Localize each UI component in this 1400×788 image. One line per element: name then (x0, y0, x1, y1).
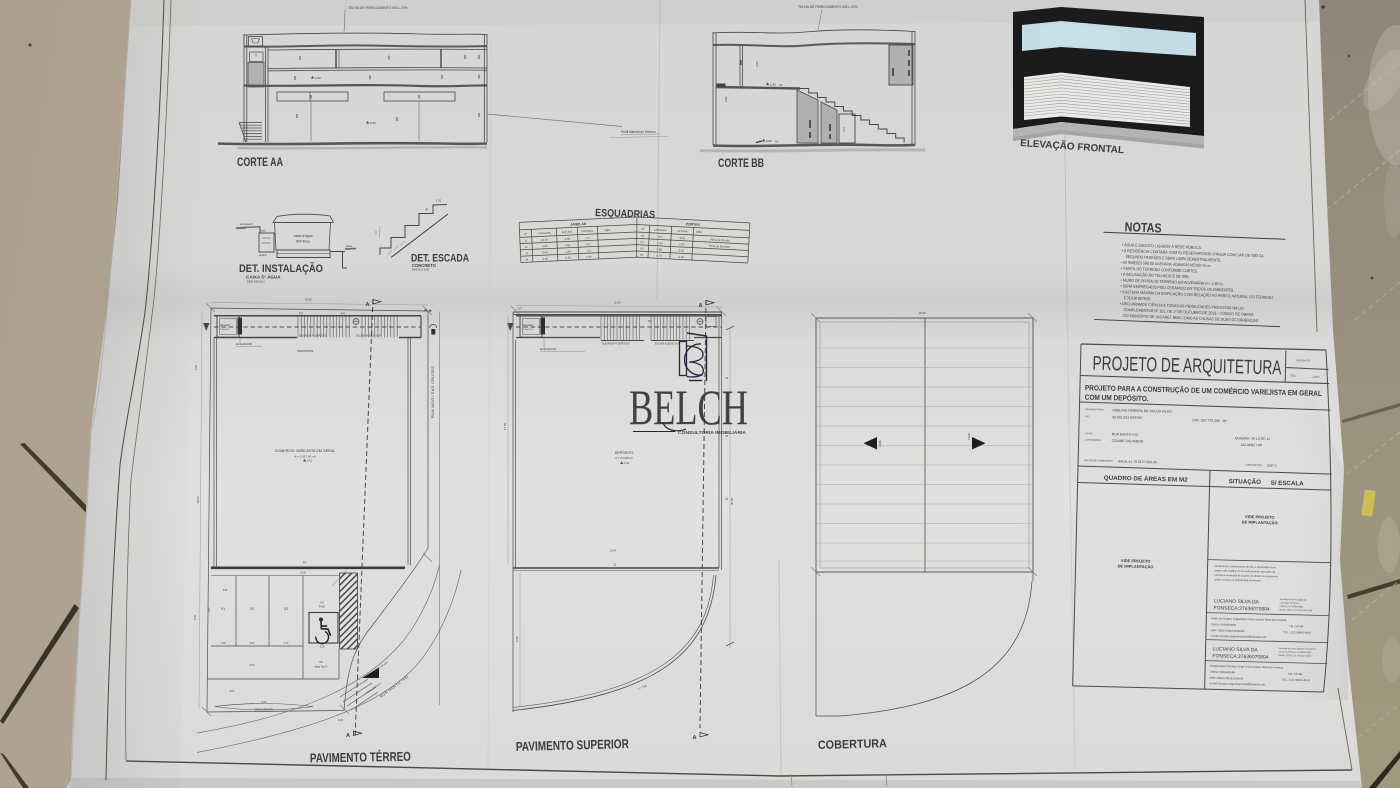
svg-text:1.40x1.10: 1.40x1.10 (220, 329, 230, 331)
svg-text:P3: P3 (299, 312, 303, 316)
svg-text:PROJETO DE ARQUITETURA: PROJETO DE ARQUITETURA (1092, 353, 1282, 380)
svg-text:A: A (366, 302, 370, 308)
svg-text:COBERTURA: COBERTURA (818, 736, 888, 752)
svg-text:38.05: 38.05 (730, 498, 734, 505)
svg-text:Elevador: Elevador (523, 323, 533, 327)
svg-text:ART: 28027230231936024: ART: 28027230231936024 (1210, 676, 1244, 681)
svg-text:CPF: 307.770.298 - 98: CPF: 307.770.298 - 98 (1192, 418, 1227, 423)
svg-text:P2: P2 (648, 319, 652, 323)
svg-text:A = 472,85 m²: A = 472,85 m² (615, 456, 633, 460)
svg-text:3.30: 3.30 (624, 461, 630, 465)
svg-text:38.00: 38.00 (196, 496, 200, 503)
svg-text:A = 1.017,40 m²: A = 1.017,40 m² (294, 455, 315, 459)
svg-text:CIDADE SALVADOR: CIDADE SALVADOR (1112, 439, 1144, 444)
svg-text:Perfil Natural do Terreno: Perfil Natural do Terreno (621, 130, 656, 134)
svg-text:ELEVADOR: ELEVADOR (540, 347, 557, 351)
svg-text:S/ ESCALA: S/ ESCALA (1271, 480, 1305, 488)
svg-text:2.10: 2.10 (679, 248, 685, 252)
svg-text:Elevador: Elevador (220, 323, 230, 327)
svg-text:LOCAL:: LOCAL: (1085, 432, 1094, 435)
svg-text:RUA MOGI DAS CRUZES: RUA MOGI DAS CRUZES (431, 366, 435, 418)
svg-text:P4: P4 (341, 312, 345, 316)
svg-text:ESCADA ACESSO SUP.: ESCADA ACESSO SUP. (655, 343, 680, 346)
svg-text:0.70: 0.70 (656, 254, 662, 258)
svg-text:3.00: 3.00 (679, 236, 685, 240)
svg-text:V3: V3 (284, 607, 288, 611)
svg-text:J1: J1 (613, 563, 617, 567)
svg-text:ALTURA: ALTURA (677, 229, 688, 234)
svg-text:5.90: 5.90 (515, 636, 519, 642)
svg-text:0.15: 0.15 (307, 459, 313, 463)
svg-text:A: A (693, 735, 697, 741)
svg-text:ESQUADRIAS: ESQUADRIAS (595, 207, 655, 221)
svg-text:0.60: 0.60 (565, 243, 571, 247)
svg-text:1.40x1.10: 1.40x1.10 (523, 329, 533, 331)
svg-text:P1: P1 (303, 561, 307, 565)
svg-text:A: A (699, 303, 703, 309)
svg-text:OBS.: OBS. (604, 228, 611, 232)
svg-text:5.50: 5.50 (194, 364, 198, 370)
svg-text:saída: saída (346, 245, 353, 248)
svg-text:DE IMPLANTAÇÃO: DE IMPLANTAÇÃO (1118, 563, 1154, 569)
svg-text:1.20: 1.20 (565, 249, 571, 253)
svg-text:PEITORIL: PEITORIL (581, 229, 594, 234)
svg-text:TEL.: (12) 98841-4993: TEL.: (12) 98841-4993 (1282, 678, 1311, 683)
svg-text:5.00: 5.00 (262, 701, 267, 704)
svg-text:A: A (346, 733, 350, 739)
svg-text:2.30: 2.30 (250, 643, 255, 645)
svg-text:LARGURA: LARGURA (537, 231, 550, 236)
svg-text:0.80: 0.80 (657, 247, 663, 251)
svg-text:DE IMPLANTAÇÃO: DE IMPLANTAÇÃO (1242, 519, 1278, 525)
svg-text:TRANSPORTE: TRANSPORTE (297, 350, 314, 353)
svg-text:2.80: 2.80 (770, 83, 776, 87)
svg-text:boia: boia (261, 230, 266, 233)
svg-text:PORTAS: PORTAS (686, 222, 701, 227)
svg-text:2.80: 2.80 (755, 61, 759, 67)
svg-text:CREA: 5069490984: CREA: 5069490984 (1211, 622, 1236, 627)
svg-text:CREA: 5069490984: CREA: 5069490984 (1210, 670, 1235, 675)
svg-text:i=20%: i=20% (879, 439, 882, 447)
svg-text:2.6: 2.6 (586, 242, 590, 246)
svg-text:1.00: 1.00 (543, 257, 549, 261)
svg-text:2.80: 2.80 (724, 96, 728, 102)
svg-text:registro: registro (259, 254, 268, 257)
svg-text:5.00: 5.00 (542, 250, 548, 254)
svg-text:Nº: Nº (641, 227, 644, 231)
svg-text:RG:: RG: (1085, 415, 1090, 418)
svg-text:entrada AC: entrada AC (240, 222, 253, 226)
svg-text:ELEVADOR: ELEVADOR (236, 342, 253, 346)
svg-text:1/100: 1/100 (1312, 375, 1320, 379)
svg-text:Vaga Tipo A: Vaga Tipo A (315, 666, 328, 669)
svg-text:CORTE AA: CORTE AA (237, 157, 283, 169)
svg-text:2.00: 2.00 (565, 237, 571, 241)
svg-text:13.40: 13.40 (541, 238, 548, 242)
svg-text:12.5: 12.5 (657, 235, 663, 239)
svg-text:TEL.: (12) 98841-4993: TEL.: (12) 98841-4993 (1283, 630, 1312, 635)
svg-text:ART: 28027230231936024: ART: 28027230231936024 (1211, 628, 1245, 633)
svg-text:V2: V2 (250, 607, 254, 611)
svg-text:ALTURA: ALTURA (562, 230, 573, 234)
svg-text:LOTEAMENTO:: LOTEAMENTO: (1085, 439, 1102, 442)
svg-text:OBS.: OBS. (696, 230, 703, 234)
svg-text:Nº: Nº (524, 232, 527, 236)
svg-text:V1: V1 (221, 607, 225, 611)
svg-text:8.00: 8.00 (193, 614, 197, 620)
svg-text:V5: V5 (319, 660, 323, 664)
svg-text:1.20: 1.20 (436, 199, 442, 203)
svg-text:FOLHA 2/2: FOLHA 2/2 (1297, 358, 1311, 362)
svg-text:1.5: 1.5 (586, 236, 590, 240)
svg-text:5.00: 5.00 (250, 665, 255, 667)
svg-text:NV: NV (779, 83, 783, 87)
svg-text:4.80: 4.80 (223, 590, 228, 592)
svg-text:LUCIANO SILVA DA: LUCIANO SILVA DA (1213, 646, 1259, 653)
svg-text:2.10: 2.10 (842, 126, 846, 132)
svg-text:15.00: 15.00 (919, 311, 926, 315)
svg-text:13.40: 13.40 (610, 550, 617, 553)
svg-text:BELCH: BELCH (629, 379, 748, 435)
svg-text:ELEVADOR P/ DEPÓSITO: ELEVADOR P/ DEPÓSITO (602, 343, 630, 346)
svg-text:12.50: 12.50 (300, 572, 307, 575)
svg-text:2.10: 2.10 (678, 255, 684, 259)
svg-text:caixa d'água: caixa d'água (294, 234, 313, 238)
svg-text:FONSECA:37636070804: FONSECA:37636070804 (1280, 605, 1304, 609)
svg-text:2.80: 2.80 (315, 76, 321, 80)
svg-text:1.20: 1.20 (657, 241, 663, 245)
svg-text:CONSULTORIA IMOBILIÁRIA: CONSULTORIA IMOBILIÁRIA (678, 429, 747, 436)
svg-text:COM UM DEPÓSITO.: COM UM DEPÓSITO. (1085, 393, 1149, 404)
svg-text:17.45: 17.45 (503, 423, 507, 430)
svg-text:ESCADA ACESSO SUP.: ESCADA ACESSO SUP. (356, 334, 381, 337)
svg-text:ESC.: ESC. (1290, 374, 1297, 378)
svg-text:2.30: 2.30 (221, 643, 226, 645)
svg-text:500 litros: 500 litros (296, 240, 310, 244)
svg-text:0.00: 0.00 (766, 139, 772, 143)
svg-text:PROPRIETÁRIO:: PROPRIETÁRIO: (1085, 408, 1104, 411)
svg-text:56.031.822 ESP/SP: 56.031.822 ESP/SP (1112, 415, 1143, 420)
svg-text:I.M.: 56748: I.M.: 56748 (1289, 624, 1304, 628)
svg-text:COMERCIO VAREJISTA EM GERAL: COMERCIO VAREJISTA EM GERAL (275, 449, 336, 453)
svg-text:CORTE BB: CORTE BB (718, 158, 764, 170)
svg-text:DEPÓSITO: DEPÓSITO (615, 450, 634, 455)
svg-text:15.00: 15.00 (305, 298, 312, 302)
svg-text:ESCALA 1/50: ESCALA 1/50 (412, 268, 430, 272)
svg-text:LUCIANO SILVA DA: LUCIANO SILVA DA (1214, 598, 1260, 605)
svg-text:1.90: 1.90 (586, 255, 592, 259)
svg-text:5.00: 5.00 (542, 244, 548, 248)
svg-text:0.00: 0.00 (370, 121, 376, 125)
svg-text:P.N.E: P.N.E (319, 606, 325, 609)
svg-text:J3: J3 (725, 497, 728, 501)
svg-text:NV: NV (775, 140, 779, 144)
svg-text:1.5: 1.5 (586, 248, 590, 252)
svg-text:0.50: 0.50 (566, 256, 572, 260)
svg-text:LUCIANO SILVA DA: LUCIANO SILVA DA (1280, 601, 1299, 604)
svg-text:JANELAS: JANELAS (570, 222, 587, 227)
svg-text:2.00: 2.00 (679, 242, 685, 246)
svg-text:4.80: 4.80 (209, 607, 211, 612)
svg-text:V4: V4 (320, 601, 324, 605)
svg-text:LARGURA: LARGURA (654, 228, 667, 233)
svg-text:8.00: 8.00 (230, 691, 235, 693)
svg-text:DET. INSTALAÇÃO: DET. INSTALAÇÃO (239, 262, 323, 275)
svg-text:RUA SANTO IVO: RUA SANTO IVO (1112, 432, 1139, 437)
svg-text:2.30: 2.30 (320, 647, 325, 649)
svg-text:TELHA DE FIBROCIMENTO INCL 20%: TELHA DE FIBROCIMENTO INCL 20% (348, 6, 408, 10)
svg-text:ZONEAMENTO:: ZONEAMENTO: (1245, 464, 1263, 467)
svg-text:Guia rebaixada: Guia rebaixada (255, 707, 273, 711)
svg-text:15.00: 15.00 (614, 301, 621, 305)
svg-text:JACAREÍ / SP: JACAREÍ / SP (1241, 443, 1263, 448)
svg-text:8.00: 8.00 (338, 718, 344, 722)
svg-text:TELHA DE FIBROCIMENTO INCL 20%: TELHA DE FIBROCIMENTO INCL 20% (798, 5, 858, 9)
svg-text:ELEVADOR P/ DEPÓSITO: ELEVADOR P/ DEPÓSITO (299, 334, 327, 337)
svg-text:SITUAÇÃO: SITUAÇÃO (1229, 478, 1262, 486)
svg-text:1.57: 1.57 (517, 308, 522, 311)
svg-text:i=20%: i=20% (968, 432, 971, 440)
svg-text:I.M.: 56748: I.M.: 56748 (1288, 672, 1303, 676)
svg-text:PAVIMENTO TÉRREO: PAVIMENTO TÉRREO (310, 749, 411, 766)
svg-text:SEM ESCALA: SEM ESCALA (247, 280, 265, 284)
svg-text:ZAP 2: ZAP 2 (1267, 464, 1277, 468)
svg-text:PAVIMENTO SUPERIOR: PAVIMENTO SUPERIOR (516, 736, 630, 754)
svg-text:2.30: 2.30 (284, 643, 289, 645)
